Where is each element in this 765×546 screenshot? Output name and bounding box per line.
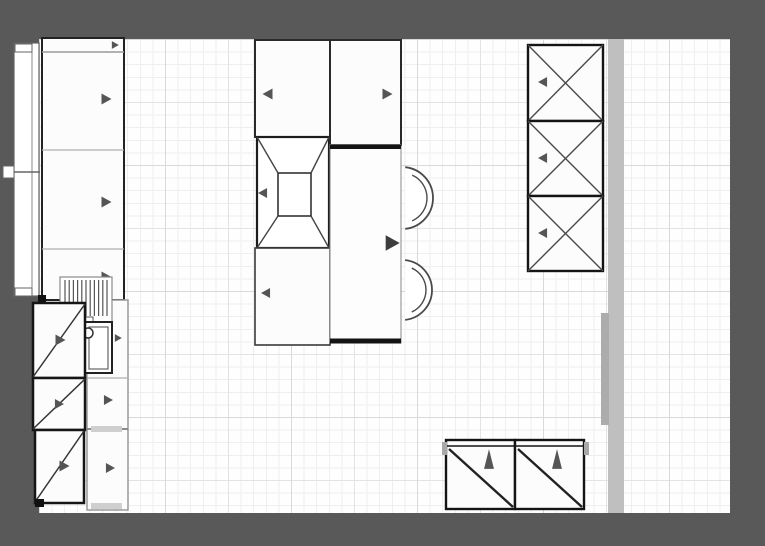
- island-bar-counter[interactable]: [330, 145, 401, 343]
- corner-cabinet-middle[interactable]: [33, 378, 85, 430]
- bar-stool-top[interactable]: [405, 167, 433, 229]
- right-wall-strip: [608, 39, 624, 513]
- corner-cabinet-top[interactable]: [33, 295, 85, 378]
- bottom-cabinet-left[interactable]: [446, 440, 515, 509]
- bottom-cabinet-right[interactable]: [515, 440, 584, 509]
- pantry-run-left[interactable]: [42, 38, 124, 300]
- tall-cabinet-right-bottom[interactable]: [528, 196, 603, 271]
- planner-canvas: [0, 0, 765, 546]
- island-cabinet-top-right[interactable]: [330, 40, 401, 145]
- left-window[interactable]: [3, 43, 40, 296]
- island-cabinet-top-left[interactable]: [255, 40, 330, 137]
- island-extractor-hood[interactable]: [257, 137, 329, 248]
- right-wall-segment: [601, 313, 609, 425]
- island-cabinet-bottom-left[interactable]: [255, 248, 330, 345]
- bar-stool-bottom[interactable]: [405, 260, 432, 320]
- floorplan-svg: [0, 0, 765, 546]
- tall-cabinet-right-middle[interactable]: [528, 121, 603, 196]
- sink[interactable]: [83, 322, 112, 373]
- tall-cabinet-right-top[interactable]: [528, 45, 603, 121]
- corner-cabinet-bottom[interactable]: [35, 430, 84, 507]
